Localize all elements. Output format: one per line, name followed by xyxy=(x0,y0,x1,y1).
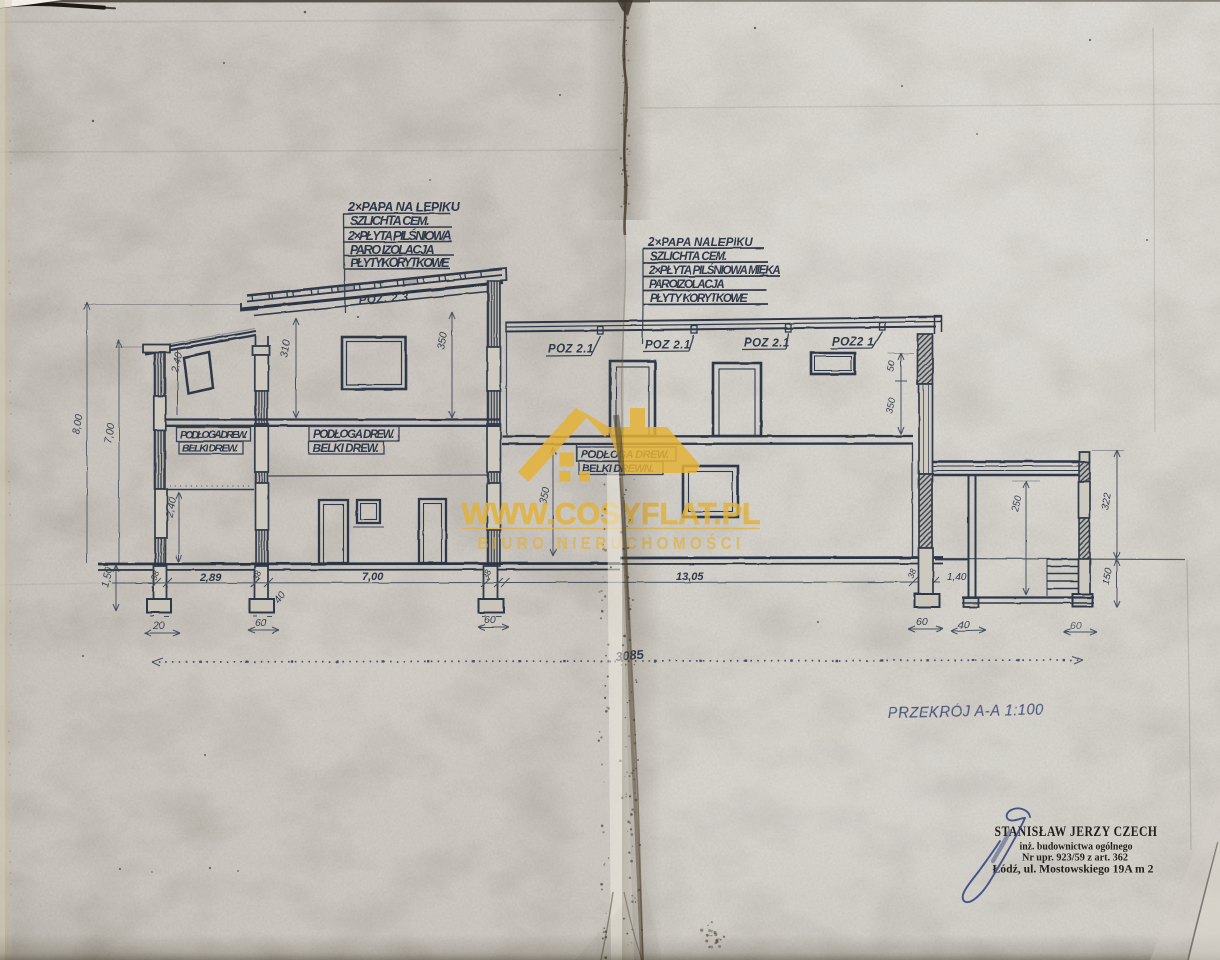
svg-text:60: 60 xyxy=(255,617,267,629)
svg-text:Łódź, ul. Mostowskiego 19A m 2: Łódź, ul. Mostowskiego 19A m 2 xyxy=(993,862,1154,876)
svg-text:2×PŁYTA PILŚNIOWA: 2×PŁYTA PILŚNIOWA xyxy=(347,228,452,243)
svg-text:40: 40 xyxy=(958,619,970,631)
svg-text:PODŁOGA DREW.: PODŁOGA DREW. xyxy=(313,429,395,441)
svg-text:PODŁOGA DREW.: PODŁOGA DREW. xyxy=(180,429,248,441)
svg-text:POZ2 1: POZ2 1 xyxy=(832,337,874,349)
svg-text:POZ 2.1: POZ 2.1 xyxy=(744,338,790,350)
svg-text:60: 60 xyxy=(1070,620,1082,632)
svg-text:PAROIZOLACJA: PAROIZOLACJA xyxy=(649,279,725,291)
svg-text:SZLICHTA CEM.: SZLICHTA CEM. xyxy=(650,251,728,263)
svg-text:inż. budownictwa ogólnego: inż. budownictwa ogólnego xyxy=(1020,842,1133,853)
svg-text:2×PAPA NALEPIKU: 2×PAPA NALEPIKU xyxy=(647,237,753,249)
svg-text:20: 20 xyxy=(152,620,165,632)
svg-text:2×PAPA NA LEPIKU: 2×PAPA NA LEPIKU xyxy=(347,200,461,214)
svg-text:60: 60 xyxy=(916,616,928,628)
svg-text:13,05: 13,05 xyxy=(676,571,704,583)
svg-text:2×PŁYTA PILŚNIOWA MIĘKA: 2×PŁYTA PILŚNIOWA MIĘKA xyxy=(648,264,781,277)
svg-text:PŁYTY KORYTKOWE: PŁYTY KORYTKOWE xyxy=(650,293,748,305)
svg-text:BELKI DREW.: BELKI DREW. xyxy=(313,443,379,455)
svg-text:PRZEKRÓJ A-A 1:100: PRZEKRÓJ A-A 1:100 xyxy=(888,702,1044,722)
svg-text:60: 60 xyxy=(484,614,496,626)
svg-text:SZLICHTA CEM.: SZLICHTA CEM. xyxy=(350,214,430,228)
svg-text:1,40: 1,40 xyxy=(947,572,967,583)
svg-text:7,00: 7,00 xyxy=(362,571,384,583)
svg-text:BELKI DREW.: BELKI DREW. xyxy=(182,443,238,455)
svg-text:2,89: 2,89 xyxy=(199,572,222,584)
svg-text:POZ 2.1: POZ 2.1 xyxy=(548,344,594,356)
svg-text:POZ 2.1: POZ 2.1 xyxy=(645,340,691,352)
